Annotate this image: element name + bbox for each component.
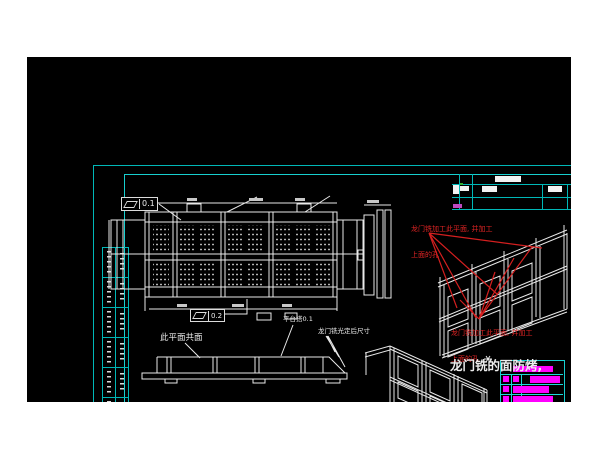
gdt-value: 0.2 bbox=[208, 311, 224, 321]
green-mark bbox=[460, 183, 463, 185]
flatness-icon bbox=[123, 201, 138, 208]
surface-treatment-note: 龙门铣的面防烤, 螺纹防烤 bbox=[450, 328, 542, 402]
square-tube-note: 此产品上面的方管全部 为150*150*10.0方管 bbox=[279, 396, 369, 402]
strip-divider bbox=[115, 247, 116, 402]
surface-note-line1: 龙门铣的面防烤, bbox=[450, 358, 542, 373]
gdt-value: 0.1 bbox=[139, 199, 157, 209]
after-milling-label: 龙门铣光定后尺寸 bbox=[318, 327, 370, 335]
red-note-top: 龙门铣加工此平面, 并加工 上面的孔 bbox=[411, 207, 492, 277]
gdt-flatness-frame-1: 0.1 bbox=[121, 197, 158, 211]
screenshot-stage: 0.1 0.2 此平面共面 平台搭0.1 龙门铣光定后尺寸 龙门铣加工此平面, … bbox=[0, 0, 600, 450]
red-note-top-line1: 龙门铣加工此平面, 并加工 bbox=[411, 225, 492, 234]
redacted-cell-text bbox=[453, 185, 459, 194]
redacted-cell-text bbox=[460, 186, 469, 191]
coplanar-note: 此平面共面 bbox=[160, 333, 203, 344]
flatness-icon bbox=[192, 312, 207, 319]
red-note-top-line2: 上面的孔 bbox=[411, 251, 492, 260]
redacted-title-text bbox=[495, 176, 521, 182]
cad-canvas: 0.1 0.2 此平面共面 平台搭0.1 龙门铣光定后尺寸 龙门铣加工此平面, … bbox=[27, 57, 571, 402]
redacted-cell-text bbox=[548, 186, 562, 192]
platform-label: 平台搭0.1 bbox=[283, 315, 313, 323]
redacted-cell-text bbox=[482, 186, 497, 192]
gdt-flatness-frame-2: 0.2 bbox=[190, 309, 225, 322]
